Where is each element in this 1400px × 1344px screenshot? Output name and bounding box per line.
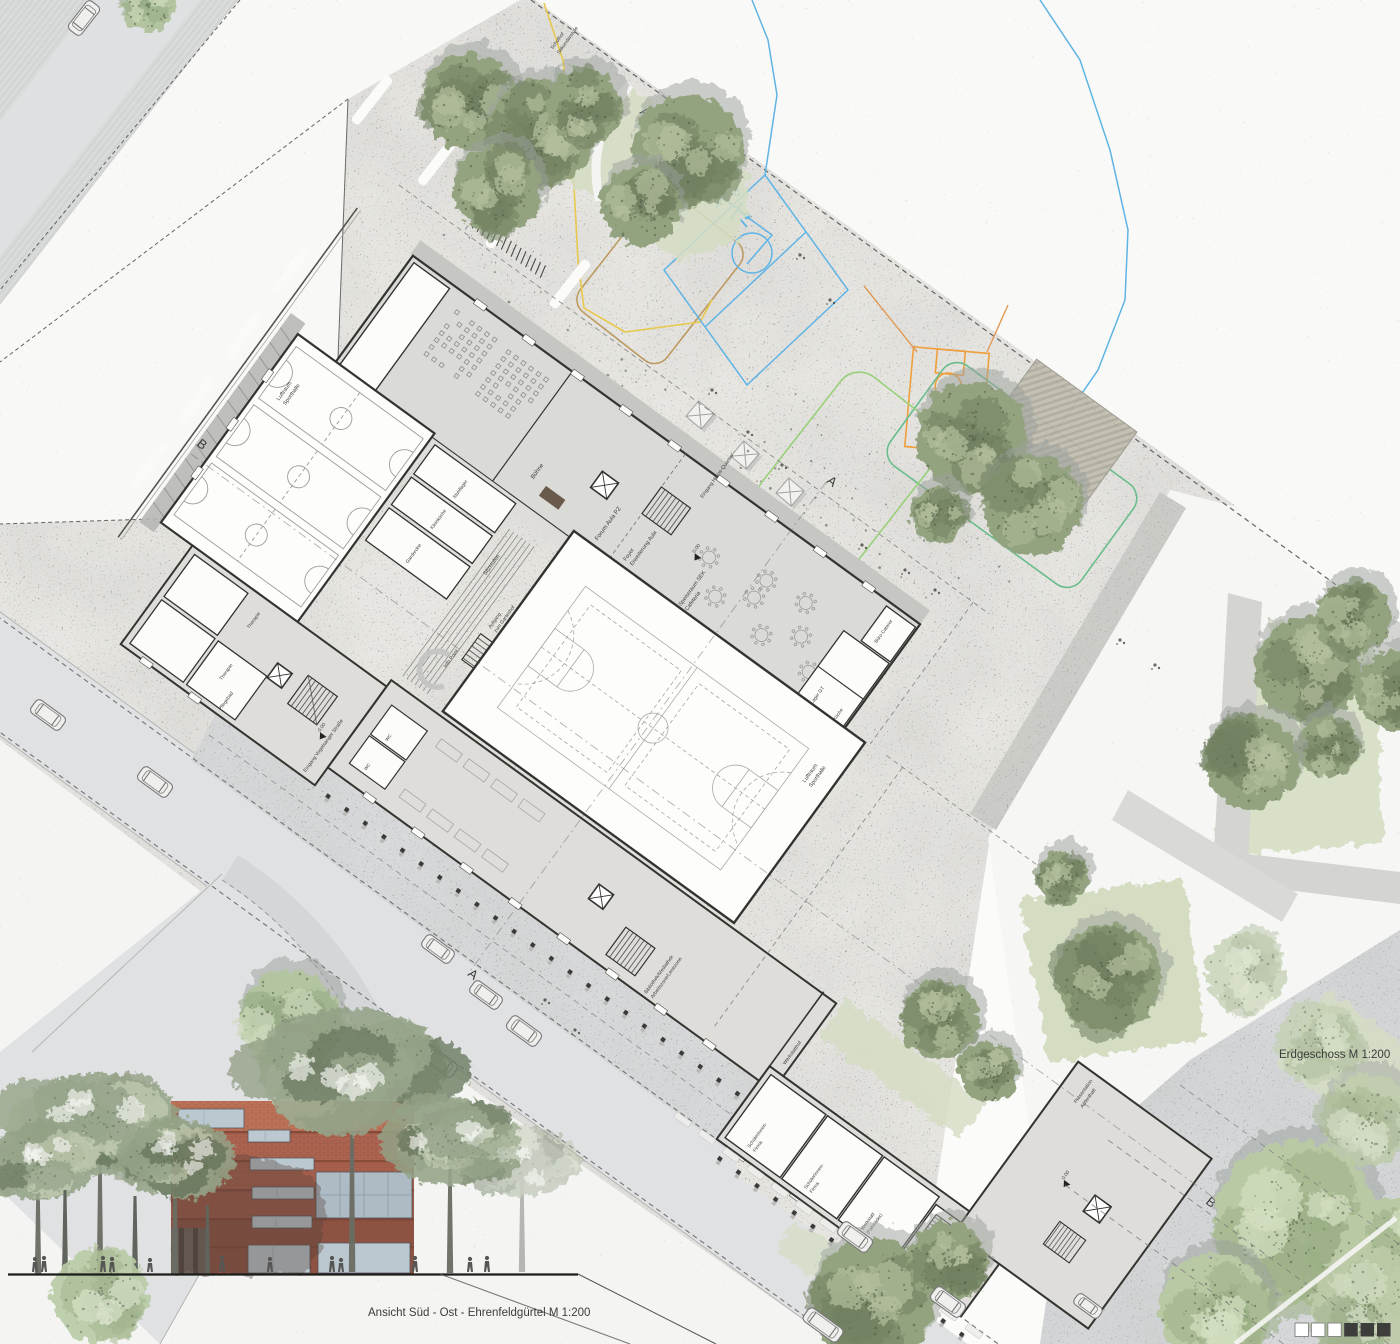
svg-text:Ansicht Süd - Ost - Ehrenfel: Ansicht Süd - Ost - Ehrenfeldgürtel M 1:… [368,1307,590,1319]
svg-text:Erdgeschoss M 1:200: Erdgeschoss M 1:200 [1279,1049,1390,1061]
